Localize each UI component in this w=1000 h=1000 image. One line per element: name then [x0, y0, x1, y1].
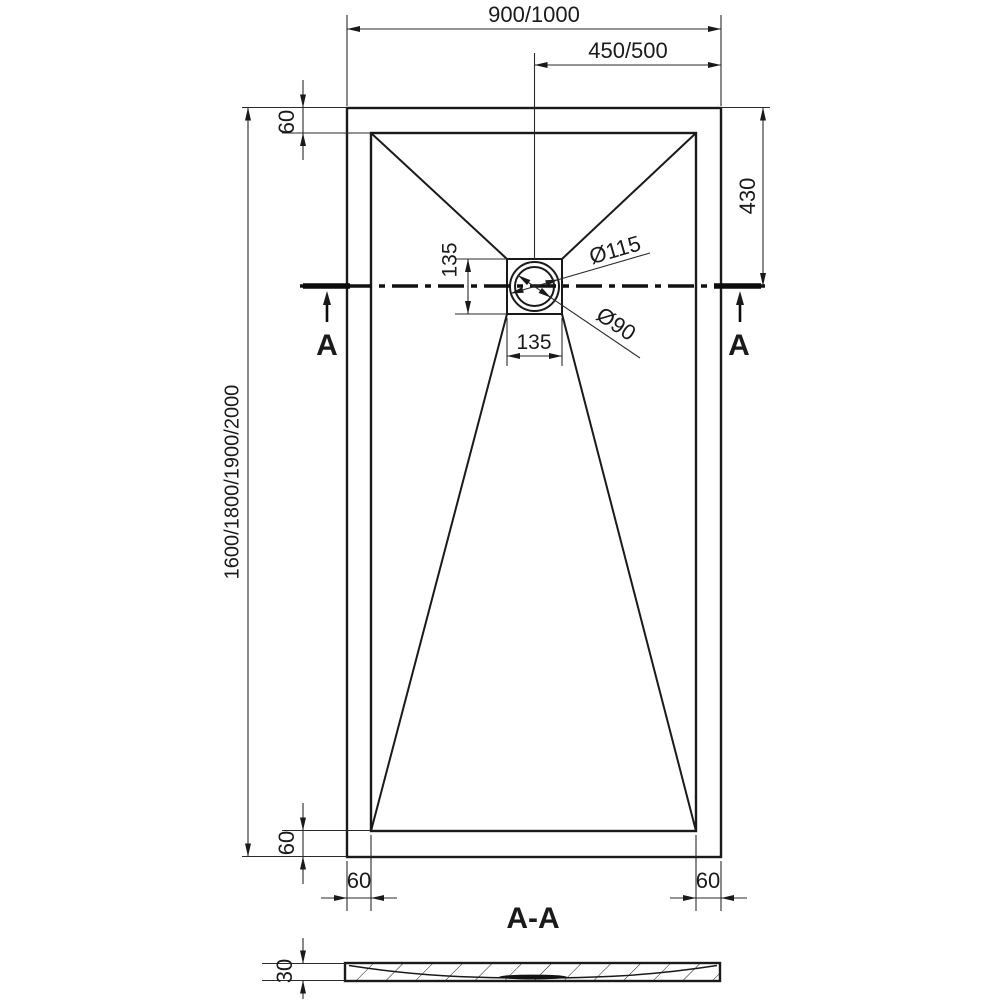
dim-rim-top-text: 60 [274, 110, 299, 134]
plan-view: A A [300, 53, 765, 857]
dim-half-width-text: 450/500 [588, 38, 668, 63]
dim-rim-right-text: 60 [696, 868, 720, 893]
section-letter-right: A [728, 329, 750, 362]
dim-drain-box-vertical-text: 135 [439, 242, 462, 277]
dim-rim-left: 60 [321, 835, 397, 911]
section-view: A-A 30 [262, 902, 720, 999]
dim-overall-width-text: 900/1000 [488, 2, 580, 27]
dim-rim-bottom-text: 60 [274, 831, 299, 855]
dim-drain-box-horizontal-text: 135 [516, 331, 551, 354]
section-drain-recess [499, 975, 567, 980]
section-view-title: A-A [506, 902, 559, 935]
dim-overall-height-text: 1600/1800/1900/2000 [221, 385, 243, 580]
dim-half-width: 450/500 [535, 38, 722, 68]
section-arrow-right [736, 291, 744, 322]
technical-drawing-page: A A 900/1000 450/500 1600/1800/1900/2 [0, 0, 1000, 1000]
dim-drain-inner-diameter-text: Ø90 [592, 302, 640, 346]
shower-tray-drawing: A A 900/1000 450/500 1600/1800/1900/2 [0, 0, 1000, 1000]
tray-inner-outline [371, 133, 696, 831]
dim-drain-box-vertical: 135 [439, 242, 507, 314]
dim-rim-left-text: 60 [347, 868, 371, 893]
dim-drain-to-top-text: 430 [735, 178, 760, 215]
dim-rim-right: 60 [670, 835, 747, 911]
dim-thickness: 30 [262, 938, 345, 999]
dim-drain-box-horizontal: 135 [507, 318, 562, 366]
section-arrow-left [323, 291, 331, 322]
section-letter-left: A [316, 329, 338, 362]
dim-drain-to-top: 430 [721, 108, 770, 287]
dimensions: 900/1000 450/500 1600/1800/1900/2000 60 [221, 2, 770, 911]
dim-rim-top: 60 [274, 80, 371, 160]
dim-thickness-text: 30 [272, 959, 297, 983]
floor-slope-lines [371, 133, 696, 831]
dim-overall-height: 1600/1800/1900/2000 [221, 108, 347, 857]
